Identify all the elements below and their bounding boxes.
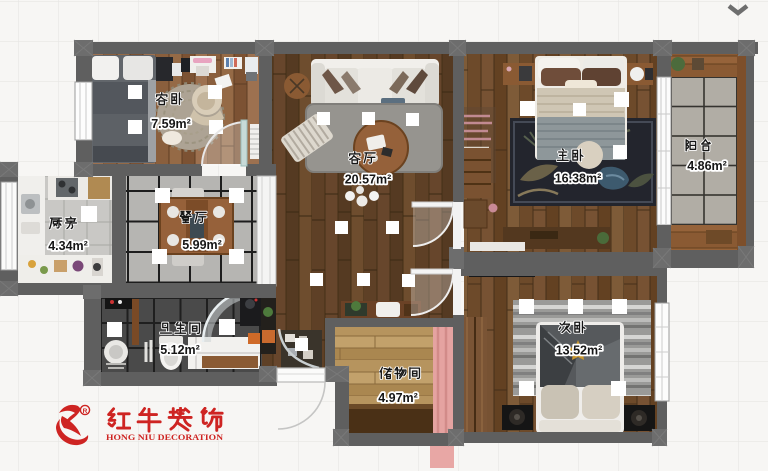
svg-text:4.34m²: 4.34m² [48,239,88,253]
svg-text:7.59m²: 7.59m² [151,117,191,131]
svg-text:20.57m²: 20.57m² [345,173,392,187]
svg-text:5.12m²: 5.12m² [160,343,200,357]
svg-text:4.86m²: 4.86m² [687,159,727,173]
svg-text:HONG NIU DECORATION: HONG NIU DECORATION [106,433,223,442]
svg-text:R: R [83,408,88,415]
svg-text:4.97m²: 4.97m² [378,391,418,405]
svg-text:16.38m²: 16.38m² [555,172,602,186]
svg-text:13.52m²: 13.52m² [556,344,603,358]
svg-text:5.99m²: 5.99m² [182,238,222,252]
